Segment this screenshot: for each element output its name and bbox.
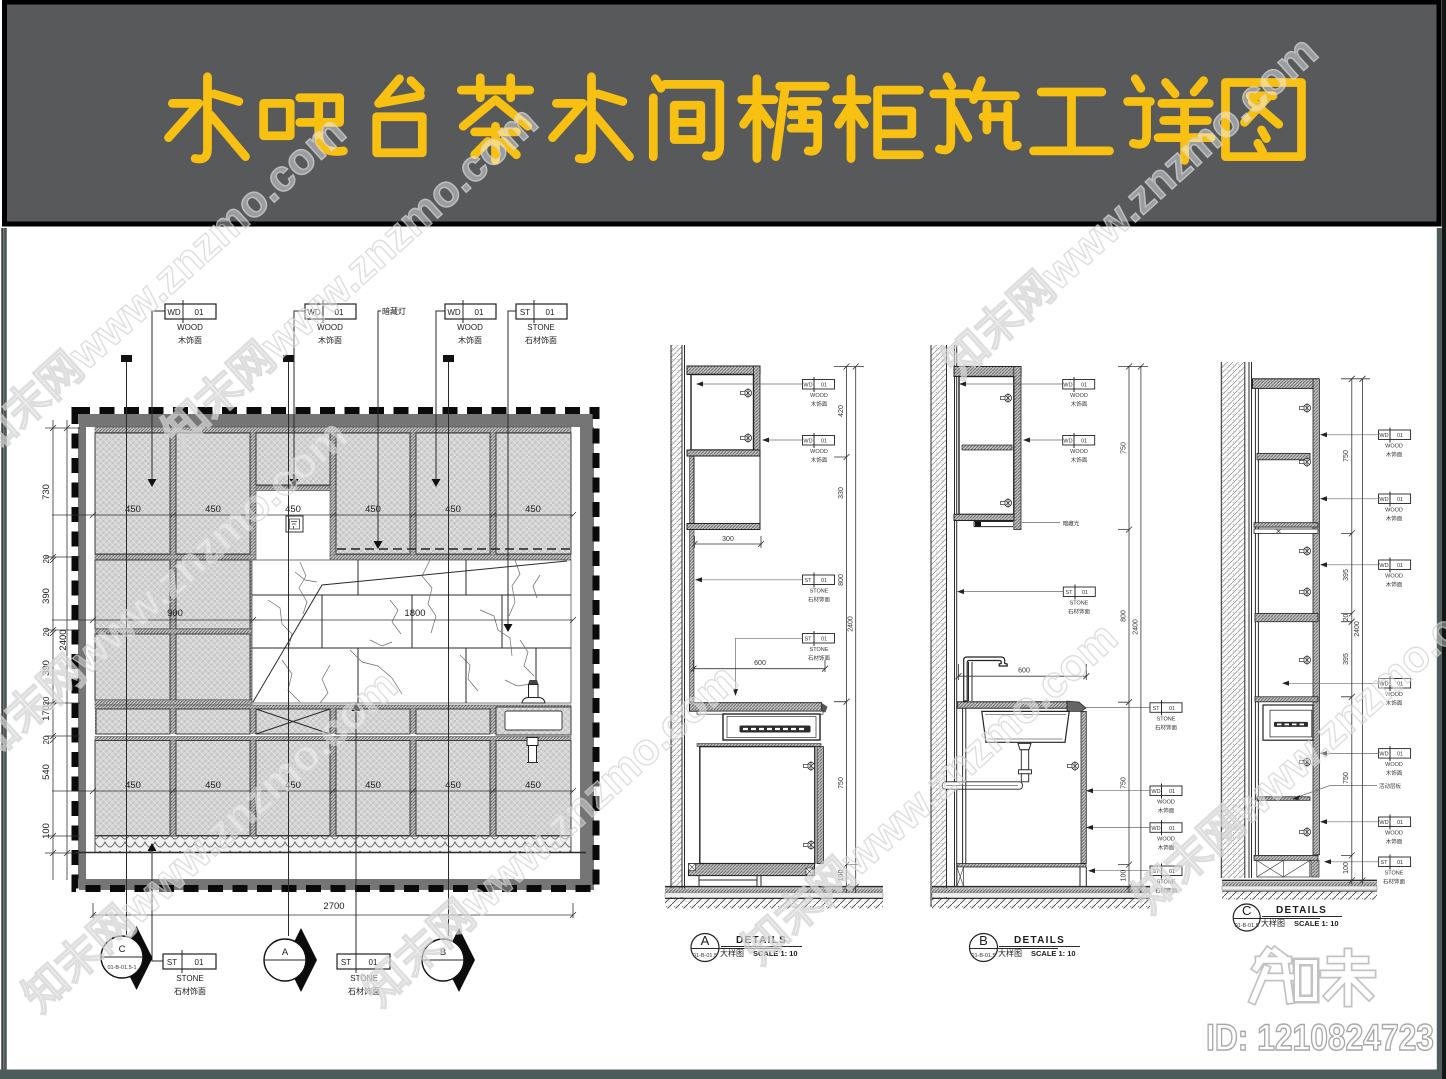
svg-text:STONE: STONE — [176, 974, 203, 983]
svg-text:石材饰面: 石材饰面 — [1068, 608, 1091, 616]
svg-text:大样图: 大样图 — [720, 948, 744, 958]
svg-text:395: 395 — [1343, 653, 1350, 665]
svg-text:STONE: STONE — [1385, 871, 1404, 877]
svg-text:01: 01 — [195, 308, 204, 317]
svg-text:WD: WD — [803, 383, 812, 389]
svg-text:01: 01 — [821, 578, 827, 584]
svg-text:450: 450 — [365, 504, 381, 515]
svg-text:450: 450 — [445, 780, 461, 791]
svg-text:WD: WD — [1151, 789, 1160, 795]
svg-text:ST: ST — [167, 958, 177, 967]
svg-text:木饰面: 木饰面 — [1071, 400, 1088, 408]
svg-text:WOOD: WOOD — [1070, 449, 1088, 455]
svg-text:730: 730 — [41, 484, 52, 500]
svg-text:100: 100 — [41, 823, 52, 839]
svg-text:木饰面: 木饰面 — [811, 400, 828, 408]
svg-text:390: 390 — [41, 588, 52, 604]
svg-text:ST: ST — [1380, 860, 1388, 866]
svg-text:STONE: STONE — [810, 589, 829, 595]
svg-text:WD: WD — [1379, 752, 1388, 758]
svg-text:木饰面: 木饰面 — [811, 456, 828, 464]
svg-text:WOOD: WOOD — [810, 449, 828, 455]
svg-text:C: C — [1242, 903, 1251, 918]
svg-text:WD: WD — [447, 308, 461, 317]
svg-text:ST: ST — [520, 308, 530, 317]
svg-text:420: 420 — [838, 405, 845, 417]
svg-text:450: 450 — [365, 780, 381, 791]
svg-text:WD: WD — [1063, 439, 1072, 445]
svg-text:750: 750 — [1343, 450, 1350, 462]
svg-text:01: 01 — [1081, 383, 1087, 389]
svg-text:100: 100 — [1343, 862, 1350, 874]
svg-text:01: 01 — [821, 637, 827, 643]
svg-text:木饰面: 木饰面 — [1071, 456, 1088, 464]
svg-text:WOOD: WOOD — [1385, 574, 1403, 580]
svg-text:木饰面: 木饰面 — [1386, 838, 1403, 846]
svg-text:A: A — [701, 933, 710, 948]
svg-text:DETAILS: DETAILS — [1276, 905, 1327, 916]
svg-text:ST: ST — [1152, 706, 1160, 712]
svg-text:WD: WD — [1379, 563, 1388, 569]
svg-text:01: 01 — [1082, 590, 1088, 596]
svg-text:WD: WD — [1063, 383, 1072, 389]
svg-text:木饰面: 木饰面 — [1386, 515, 1403, 523]
svg-text:100: 100 — [1121, 870, 1128, 882]
svg-text:WD: WD — [1379, 433, 1388, 439]
svg-text:STONE: STONE — [1157, 716, 1176, 722]
svg-text:木饰面: 木饰面 — [1386, 769, 1403, 777]
svg-text:01: 01 — [821, 383, 827, 389]
svg-text:01: 01 — [1081, 439, 1087, 445]
svg-text:DETAILS: DETAILS — [1014, 935, 1065, 946]
svg-text:20: 20 — [42, 627, 51, 636]
svg-text:2400: 2400 — [1133, 619, 1140, 635]
svg-text:石材饰面: 石材饰面 — [1383, 878, 1406, 886]
svg-text:木饰面: 木饰面 — [1158, 807, 1175, 815]
svg-text:300: 300 — [722, 536, 734, 543]
svg-text:ST: ST — [341, 958, 351, 967]
svg-text:01: 01 — [1169, 789, 1175, 795]
svg-text:WD: WD — [1151, 826, 1160, 832]
svg-text:木饰面: 木饰面 — [1386, 581, 1403, 589]
svg-text:石材饰面: 石材饰面 — [808, 654, 831, 662]
svg-text:600: 600 — [754, 660, 766, 667]
svg-text:540: 540 — [41, 764, 52, 780]
svg-text:2400: 2400 — [848, 616, 855, 632]
svg-text:WOOD: WOOD — [457, 323, 483, 332]
svg-text:SCALE 1: 10: SCALE 1: 10 — [1294, 919, 1339, 928]
svg-text:活动层板: 活动层板 — [1379, 782, 1402, 790]
svg-text:450: 450 — [525, 504, 541, 515]
svg-text:01-B-01.5: 01-B-01.5 — [971, 953, 995, 959]
svg-text:20: 20 — [42, 554, 51, 563]
svg-text:450: 450 — [525, 780, 541, 791]
svg-text:WOOD: WOOD — [1385, 508, 1403, 514]
svg-text:B: B — [979, 933, 988, 948]
svg-text:450: 450 — [125, 504, 141, 515]
svg-text:WD: WD — [1379, 820, 1388, 826]
svg-text:ST: ST — [804, 637, 812, 643]
svg-text:800: 800 — [838, 574, 845, 586]
svg-text:800: 800 — [1121, 610, 1128, 622]
svg-text:01: 01 — [821, 439, 827, 445]
svg-text:ST: ST — [1065, 590, 1073, 596]
svg-text:01: 01 — [1397, 820, 1403, 826]
svg-text:01-B-01.5: 01-B-01.5 — [1235, 923, 1259, 929]
svg-text:01: 01 — [475, 308, 484, 317]
svg-text:石材饰面: 石材饰面 — [1155, 723, 1178, 731]
svg-text:01: 01 — [1397, 497, 1403, 503]
svg-text:01: 01 — [1169, 826, 1175, 832]
svg-text:WOOD: WOOD — [1157, 800, 1175, 806]
svg-text:木饰面: 木饰面 — [1386, 451, 1403, 459]
svg-text:20: 20 — [42, 735, 51, 744]
svg-text:A: A — [282, 947, 289, 958]
svg-text:WOOD: WOOD — [1385, 762, 1403, 768]
svg-text:750: 750 — [1343, 772, 1350, 784]
svg-text:ST: ST — [804, 578, 812, 584]
svg-text:WOOD: WOOD — [177, 323, 203, 332]
svg-text:木饰面: 木饰面 — [318, 335, 342, 345]
svg-text:SCALE 1: 10: SCALE 1: 10 — [1031, 949, 1076, 958]
svg-text:STONE: STONE — [1070, 601, 1089, 607]
svg-text:ID: 1210824723: ID: 1210824723 — [1206, 1017, 1434, 1058]
svg-text:750: 750 — [1121, 442, 1128, 454]
svg-text:450: 450 — [205, 780, 221, 791]
svg-text:01: 01 — [195, 958, 204, 967]
svg-text:01: 01 — [1397, 433, 1403, 439]
svg-text:01: 01 — [546, 308, 555, 317]
svg-text:450: 450 — [445, 504, 461, 515]
svg-text:WD: WD — [1379, 497, 1388, 503]
svg-text:2700: 2700 — [323, 901, 344, 912]
svg-text:750: 750 — [1121, 777, 1128, 789]
svg-text:WOOD: WOOD — [1385, 444, 1403, 450]
svg-text:大样图: 大样图 — [998, 948, 1022, 958]
svg-text:330: 330 — [838, 487, 845, 499]
svg-text:2400: 2400 — [1354, 621, 1361, 637]
svg-text:750: 750 — [838, 777, 845, 789]
svg-text:01: 01 — [1397, 860, 1403, 866]
svg-text:01-B-01.5-1: 01-B-01.5-1 — [107, 965, 136, 971]
svg-text:01: 01 — [1397, 752, 1403, 758]
svg-text:WOOD: WOOD — [1070, 393, 1088, 399]
svg-text:01-B-01.5: 01-B-01.5 — [693, 953, 717, 959]
svg-text:石材饰面: 石材饰面 — [174, 986, 206, 996]
svg-text:450: 450 — [125, 780, 141, 791]
svg-text:395: 395 — [1343, 569, 1350, 581]
svg-text:木饰面: 木饰面 — [458, 335, 482, 345]
svg-text:01: 01 — [1397, 563, 1403, 569]
svg-text:STONE: STONE — [810, 647, 829, 653]
svg-text:木饰面: 木饰面 — [178, 335, 202, 345]
svg-text:STONE: STONE — [527, 323, 554, 332]
svg-text:暗藏灯: 暗藏灯 — [382, 306, 406, 316]
svg-text:1800: 1800 — [404, 608, 425, 619]
svg-text:WD: WD — [803, 439, 812, 445]
svg-text:石材饰面: 石材饰面 — [808, 596, 831, 604]
svg-text:20: 20 — [1343, 614, 1350, 622]
svg-text:WOOD: WOOD — [810, 393, 828, 399]
svg-text:01: 01 — [1169, 706, 1175, 712]
svg-text:石材饰面: 石材饰面 — [525, 335, 557, 345]
svg-text:WOOD: WOOD — [1385, 831, 1403, 837]
svg-text:大样图: 大样图 — [1261, 918, 1285, 928]
svg-text:暗藏光: 暗藏光 — [1063, 520, 1080, 528]
